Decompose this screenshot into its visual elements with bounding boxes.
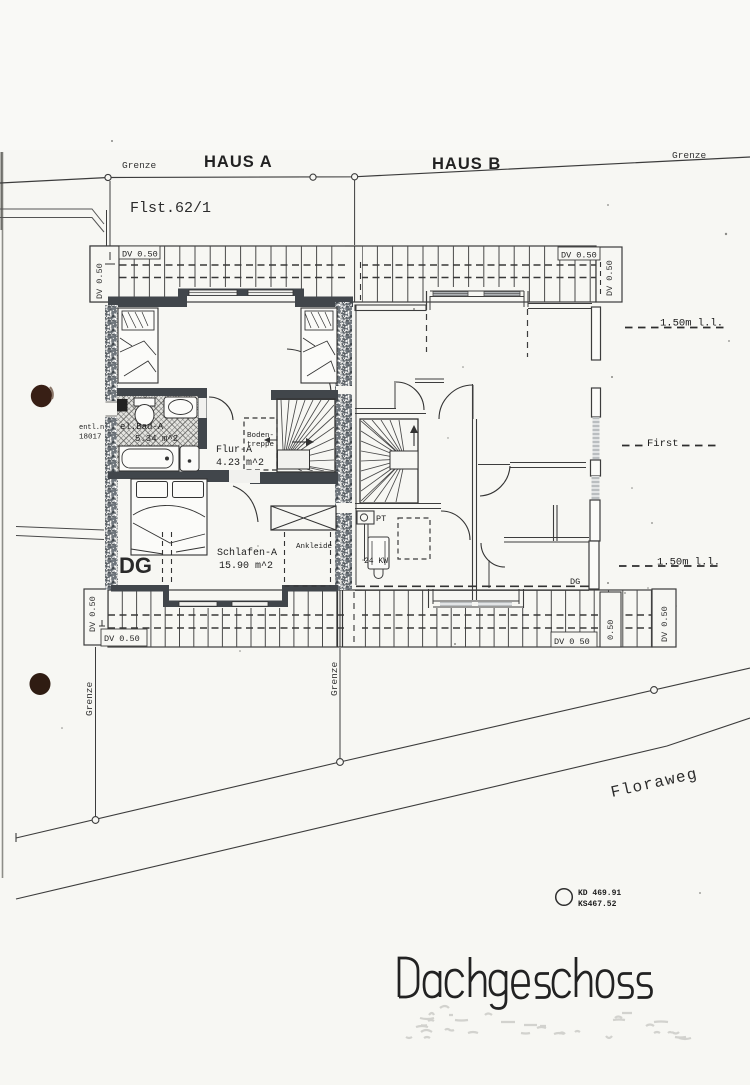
svg-text:el.Bad-A: el.Bad-A (120, 422, 164, 432)
svg-text:18017: 18017 (79, 434, 102, 442)
svg-text:1.50m l.l.: 1.50m l.l. (657, 557, 720, 569)
svg-text:First: First (647, 438, 679, 450)
svg-text:Flst.62/1: Flst.62/1 (130, 200, 211, 217)
svg-text:DV 0.50: DV 0.50 (95, 263, 105, 299)
svg-text:DV 0.50: DV 0.50 (605, 260, 615, 296)
svg-text:4.23 m^2: 4.23 m^2 (216, 458, 264, 469)
svg-text:Schlafen-A: Schlafen-A (217, 547, 277, 559)
svg-text:1.50m l.l.: 1.50m l.l. (660, 318, 723, 330)
svg-text:Grenze: Grenze (329, 661, 340, 696)
svg-text:PT: PT (376, 514, 386, 524)
svg-text:Grenze: Grenze (122, 160, 157, 171)
svg-text:Ankleide: Ankleide (296, 543, 332, 551)
svg-text:DV 0.50: DV 0.50 (88, 596, 98, 632)
svg-text:DV 0.50: DV 0.50 (660, 606, 670, 642)
svg-text:5.34 m^2: 5.34 m^2 (135, 434, 178, 444)
svg-text:15.90 m^2: 15.90 m^2 (219, 561, 273, 572)
svg-text:DV 0.50: DV 0.50 (122, 250, 158, 260)
svg-text:HAUS A: HAUS A (204, 153, 273, 171)
svg-text:Grenze: Grenze (672, 150, 707, 161)
svg-text:DG: DG (119, 553, 152, 578)
svg-text:24 KW: 24 KW (364, 557, 388, 566)
svg-text:Grenze: Grenze (84, 681, 95, 716)
svg-text:DV 0.50: DV 0.50 (561, 251, 597, 261)
svg-text:DV 0.50: DV 0.50 (104, 634, 140, 644)
svg-text:HAUS B: HAUS B (432, 155, 501, 173)
svg-text:KD 469.91: KD 469.91 (578, 889, 621, 898)
svg-text:entl.n: entl.n (79, 424, 104, 432)
svg-text:0.50: 0.50 (606, 620, 616, 640)
svg-text:DV 0 50: DV 0 50 (554, 637, 590, 647)
svg-text:DG: DG (570, 577, 580, 587)
svg-text:KS467.52: KS467.52 (578, 900, 617, 909)
